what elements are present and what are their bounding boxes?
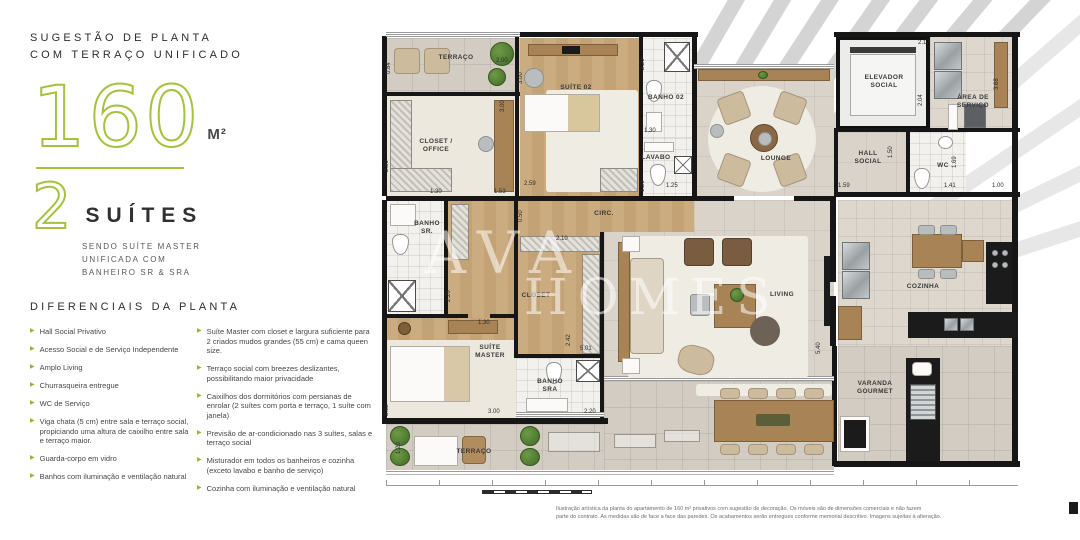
room-label-banho-sr: BANHOSR.: [397, 220, 457, 236]
dimension-label: 2.00: [496, 58, 508, 64]
dimension-label: 1.69: [952, 156, 958, 168]
room-label-banho-sra: BANHOSRA: [520, 378, 580, 394]
feature-text: Suíte Master com closet e largura sufici…: [207, 327, 375, 356]
subtitle-line: BANHEIRO SR & SRA: [82, 266, 375, 279]
arrow-bullet-icon: ▶: [30, 472, 35, 482]
dimension-label: 3.00: [518, 72, 524, 84]
feature-text: Acesso Social e de Serviço Independente: [40, 345, 179, 355]
feature-item: ▶Hall Social Privativo: [30, 327, 193, 337]
feature-item: ▶Caixilhos dos dormitórios com persianas…: [197, 392, 375, 421]
dimension-label: 2.04: [918, 94, 924, 106]
suites-value: 2: [32, 181, 71, 234]
green-rule: [36, 167, 184, 169]
arrow-bullet-icon: ▶: [30, 417, 35, 446]
arrow-bullet-icon: ▶: [197, 484, 202, 494]
room-label-living: LIVING: [752, 291, 812, 299]
suites-label: SUÍTES: [85, 204, 203, 228]
feature-text: Banhos com iluminação e ventilação natur…: [40, 472, 187, 482]
feature-text: Caixilhos dos dormitórios com persianas …: [207, 392, 375, 421]
dimension-label: 2.20: [640, 58, 646, 70]
feature-item: ▶WC de Serviço: [30, 399, 193, 409]
dimension-label: 0.50: [518, 210, 524, 222]
plan-header: SUGESTÃO DE PLANTA COM TERRAÇO UNIFICADO: [30, 30, 375, 64]
dimension-labels: 0.842.003.002.501.301.530.502.593.002.20…: [378, 28, 1018, 500]
dimension-label: 2.26: [446, 290, 452, 302]
feature-item: ▶Suíte Master com closet e largura sufic…: [197, 327, 375, 356]
room-label-suite02: SUÍTE 02: [536, 84, 616, 92]
diferenciais-title: DIFERENCIAIS DA PLANTA: [30, 301, 375, 313]
dimension-label: 1.20: [396, 442, 402, 454]
arrow-bullet-icon: ▶: [30, 327, 35, 337]
room-label-circ: CIRC.: [574, 210, 634, 218]
info-panel: SUGESTÃO DE PLANTA COM TERRAÇO UNIFICADO…: [30, 30, 375, 493]
header-line2: COM TERRAÇO UNIFICADO: [30, 47, 375, 64]
feature-text: Amplo Living: [40, 363, 83, 373]
feature-text: Hall Social Privativo: [40, 327, 106, 337]
feature-item: ▶Banhos com iluminação e ventilação natu…: [30, 472, 193, 482]
disclaimer: Ilustração artística da planta do aparta…: [556, 505, 1050, 521]
feature-item: ▶Cozinha com iluminação e ventilação nat…: [197, 484, 375, 494]
dimension-label: 0.84: [386, 62, 392, 74]
dimension-label: 2.50: [384, 160, 390, 172]
feature-item: ▶Misturador em todos os banheiros e cozi…: [197, 456, 375, 475]
dimension-label: 3.68: [994, 78, 1000, 90]
room-label-banho02: BANHO 02: [636, 94, 696, 102]
arrow-bullet-icon: ▶: [30, 381, 35, 391]
subtitle-line: SENDO SUÍTE MASTER: [82, 240, 375, 253]
floor-plan: TERRAÇO CLOSET /OFFICE SUÍTE 02 BANHO 02…: [378, 28, 1018, 500]
subtitle-line: UNIFICADA COM: [82, 253, 375, 266]
dimension-label: 5.01: [580, 346, 592, 352]
suites-figure: 2 SUÍTES: [32, 181, 375, 234]
feature-text: Misturador em todos os banheiros e cozin…: [207, 456, 375, 475]
feature-item: ▶Viga chata (5 cm) entre sala e terraço …: [30, 417, 193, 446]
arrow-bullet-icon: ▶: [30, 399, 35, 409]
room-label-elevador: ELEVADORSOCIAL: [844, 74, 924, 90]
feature-item: ▶Churrasqueira entregue: [30, 381, 193, 391]
header-line1: SUGESTÃO DE PLANTA: [30, 30, 375, 47]
dimension-label: 5.40: [816, 342, 822, 354]
room-label-terraco-bottom: TERRAÇO: [444, 448, 504, 456]
feature-text: WC de Serviço: [40, 399, 90, 409]
dimension-label: 1.53: [494, 189, 506, 195]
dimension-label: 2.20: [584, 409, 596, 415]
dimension-label: 1.20: [640, 180, 646, 192]
room-label-lounge: LOUNGE: [746, 155, 806, 163]
feature-text: Cozinha com iluminação e ventilação natu…: [207, 484, 356, 494]
dimension-label: 1.41: [944, 183, 956, 189]
room-label-cozinha: COZINHA: [893, 283, 953, 291]
room-label-closet-office: CLOSET /OFFICE: [396, 138, 476, 154]
arrow-bullet-icon: ▶: [30, 345, 35, 355]
room-label-suite-master: SUÍTEMASTER: [450, 344, 530, 360]
dimension-label: 1.00: [992, 183, 1004, 189]
room-label-closet: CLOSET: [506, 292, 566, 300]
arrow-bullet-icon: ▶: [197, 327, 202, 356]
arrow-bullet-icon: ▶: [197, 364, 202, 383]
arrow-bullet-icon: ▶: [197, 456, 202, 475]
dimension-label: 1.30: [644, 128, 656, 134]
dimension-label: 1.50: [888, 146, 894, 158]
diferenciais-right-column: ▶Suíte Master com closet e largura sufic…: [197, 327, 375, 493]
feature-item: ▶Acesso Social e de Serviço Independente: [30, 345, 193, 355]
corner-mark: [1069, 502, 1078, 514]
feature-text: Churrasqueira entregue: [40, 381, 119, 391]
dimension-label: 1.25: [666, 183, 678, 189]
dimension-label: 3.00: [500, 100, 506, 112]
disclaimer-line2: parte do contrato. As medidas são de fac…: [556, 513, 1050, 521]
dimension-label: 3.00: [488, 409, 500, 415]
suites-subtitle: SENDO SUÍTE MASTERUNIFICADA COMBANHEIRO …: [82, 240, 375, 279]
arrow-bullet-icon: ▶: [197, 429, 202, 448]
diferenciais-columns: ▶Hall Social Privativo▶Acesso Social e d…: [30, 327, 375, 493]
feature-text: Terraço social com breezes deslizantes, …: [207, 364, 375, 383]
dimension-label: 1.30: [478, 320, 490, 326]
dimension-label: 2.59: [524, 181, 536, 187]
dimension-label: 1.59: [838, 183, 850, 189]
dimension-label: 3.02: [384, 404, 390, 416]
area-unit: M²: [207, 126, 227, 143]
area-figure: 160 M²: [32, 82, 375, 153]
feature-item: ▶Guarda-corpo em vidro: [30, 454, 193, 464]
arrow-bullet-icon: ▶: [30, 363, 35, 373]
room-label-wc: WC: [913, 162, 973, 170]
room-label-terraco-top: TERRAÇO: [416, 54, 496, 62]
diferenciais-left-column: ▶Hall Social Privativo▶Acesso Social e d…: [30, 327, 193, 493]
arrow-bullet-icon: ▶: [197, 392, 202, 421]
feature-item: ▶Amplo Living: [30, 363, 193, 373]
dimension-label: 2.10: [556, 236, 568, 242]
feature-text: Previsão de ar-condicionado nas 3 suítes…: [207, 429, 375, 448]
feature-item: ▶Terraço social com breezes deslizantes,…: [197, 364, 375, 383]
dimension-label: 1.30: [430, 189, 442, 195]
arrow-bullet-icon: ▶: [30, 454, 35, 464]
dimension-label: 2.17: [918, 40, 930, 46]
dimension-label: 2.42: [566, 334, 572, 346]
room-label-varanda: VARANDAGOURMET: [845, 380, 905, 396]
disclaimer-line1: Ilustração artística da planta do aparta…: [556, 505, 1050, 513]
feature-item: ▶Previsão de ar-condicionado nas 3 suíte…: [197, 429, 375, 448]
room-label-area-servico: ÁREA DESERVIÇO: [938, 94, 1008, 110]
feature-text: Viga chata (5 cm) entre sala e terraço s…: [40, 417, 193, 446]
feature-text: Guarda-corpo em vidro: [40, 454, 117, 464]
room-label-lavabo: LAVABO: [626, 154, 686, 162]
area-value: 160: [32, 82, 201, 153]
